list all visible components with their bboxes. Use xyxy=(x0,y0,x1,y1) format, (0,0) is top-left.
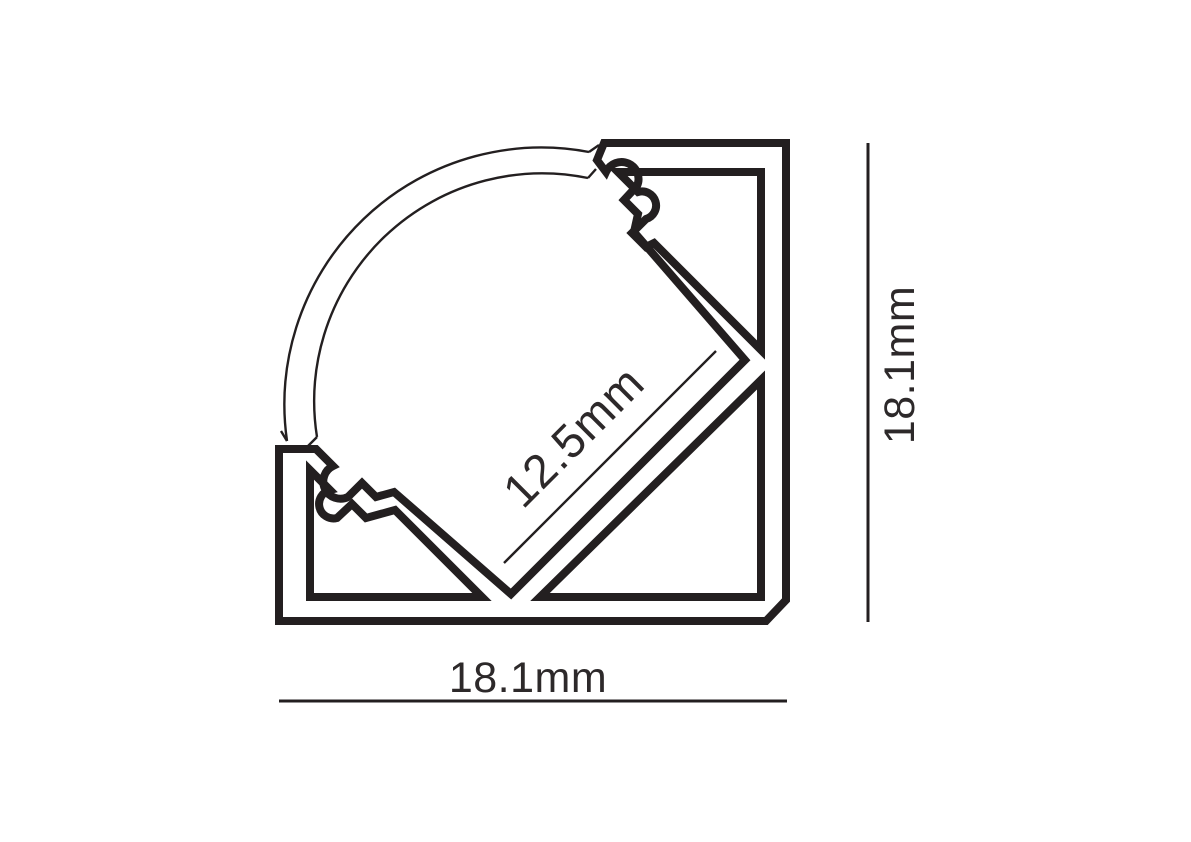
width-dimension-label: 18.1mm xyxy=(449,654,607,702)
cavity-top-right-triangle xyxy=(618,172,761,350)
technical-drawing-canvas: 12.5mm 18.1mm 18.1mm xyxy=(0,0,1191,842)
cover-outer-arc xyxy=(284,148,589,441)
height-dimension-label: 18.1mm xyxy=(876,286,924,444)
profile-drawing: 12.5mm 18.1mm 18.1mm xyxy=(0,0,1191,842)
profile-body-outline xyxy=(279,143,786,621)
cover-inner-arc xyxy=(314,173,588,437)
